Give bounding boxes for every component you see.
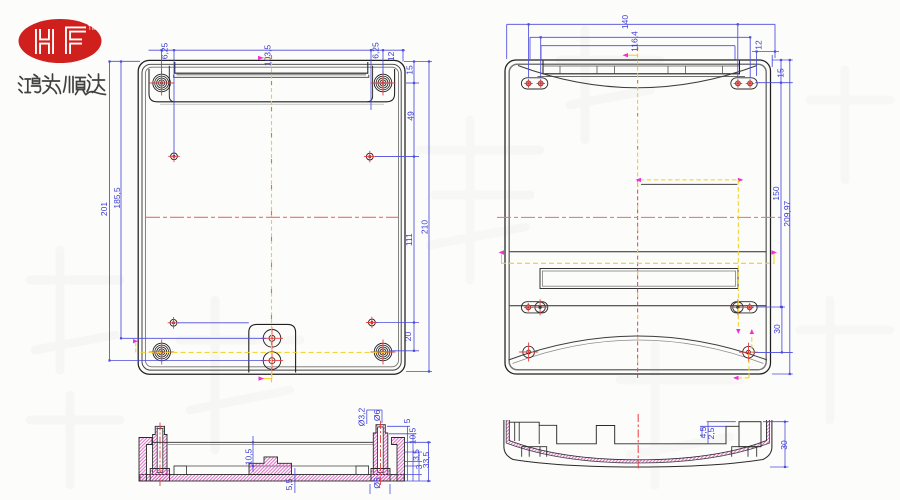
svg-text:12: 12 [754,40,764,50]
svg-text:5: 5 [402,418,412,423]
svg-text:15: 15 [775,68,785,78]
svg-text:6,25: 6,25 [159,42,169,59]
svg-text:33,5: 33,5 [421,451,431,468]
svg-text:185,5: 185,5 [112,187,122,209]
svg-text:12: 12 [386,51,396,61]
svg-text:201: 201 [99,202,109,216]
svg-text:Ø6: Ø6 [372,410,382,422]
svg-text:Ø3,2: Ø3,2 [357,408,367,427]
svg-text:210: 210 [420,220,430,234]
svg-text:5,5: 5,5 [284,478,294,490]
svg-text:TM: TM [88,26,97,32]
svg-text:49: 49 [406,111,416,121]
svg-text:6,25: 6,25 [371,42,381,59]
svg-text:140: 140 [620,15,630,29]
svg-text:3,5: 3,5 [411,449,421,461]
svg-text:150: 150 [771,186,781,200]
svg-text:116,4: 116,4 [630,31,640,52]
svg-text:30: 30 [779,440,789,450]
svg-text:20: 20 [403,332,413,342]
svg-text:2,5: 2,5 [706,427,716,439]
svg-text:Ø6: Ø6 [372,477,382,489]
svg-text:111: 111 [404,233,414,246]
svg-text:30: 30 [772,324,782,334]
svg-text:209,97: 209,97 [782,200,792,226]
svg-text:10,5: 10,5 [244,448,254,465]
svg-text:103,5: 103,5 [262,45,272,67]
svg-text:15: 15 [405,65,415,75]
svg-text:10,5: 10,5 [408,427,418,444]
